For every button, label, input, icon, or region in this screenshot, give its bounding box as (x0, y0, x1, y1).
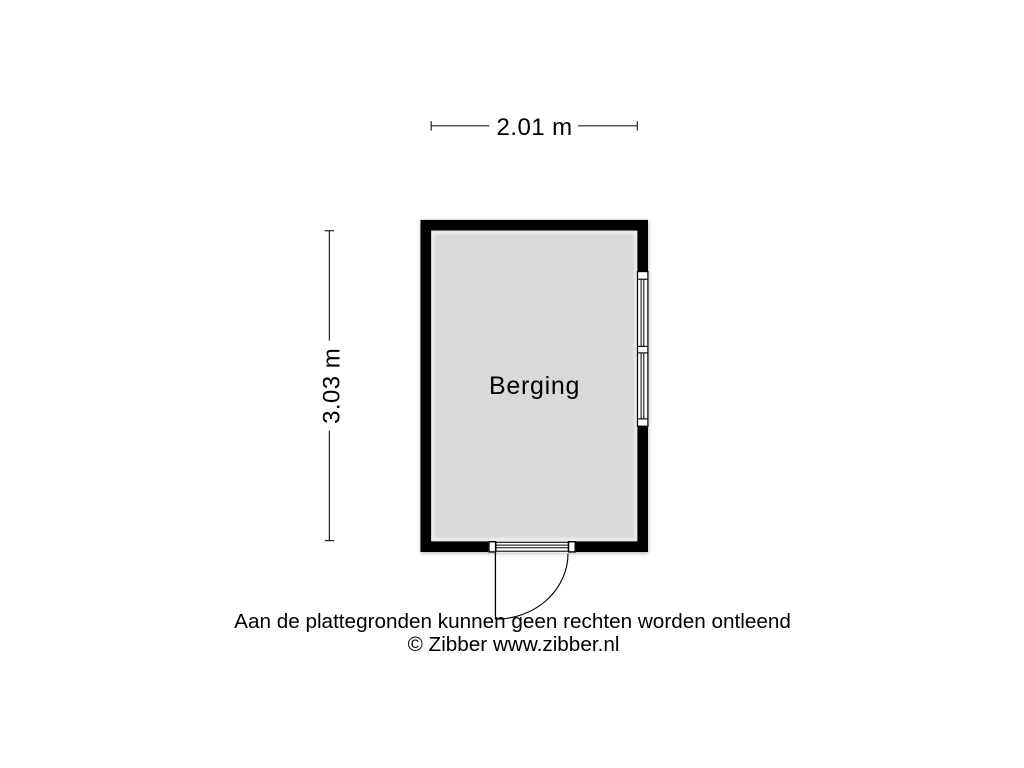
svg-text:Berging: Berging (489, 372, 580, 400)
svg-text:2.01 m: 2.01 m (497, 114, 573, 141)
svg-text:© Zibber www.zibber.nl: © Zibber www.zibber.nl (408, 633, 620, 656)
svg-text:3.03 m: 3.03 m (319, 348, 346, 424)
svg-text:Aan de plattegronden kunnen ge: Aan de plattegronden kunnen geen rechten… (234, 610, 791, 633)
